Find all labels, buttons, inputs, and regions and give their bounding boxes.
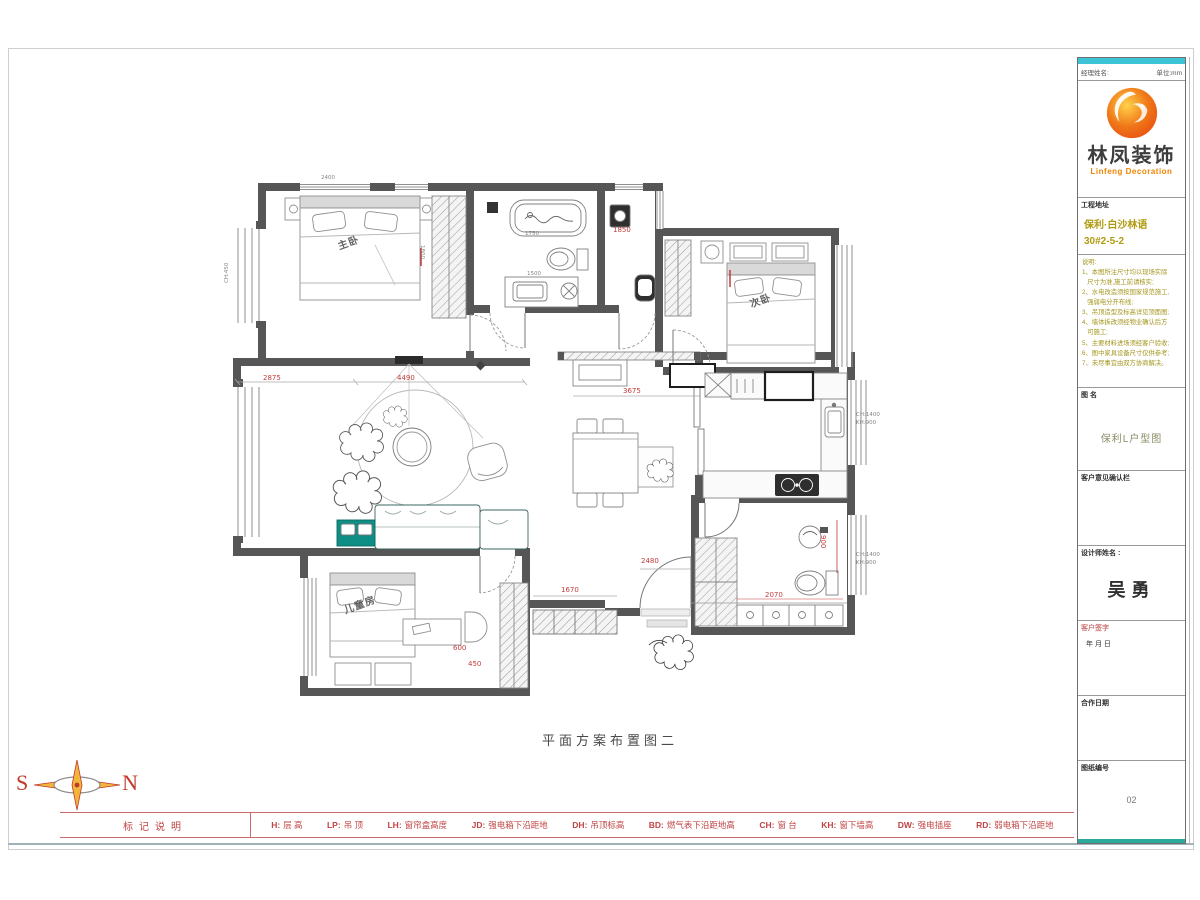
client-confirm-label: 客户意见确认栏 (1078, 471, 1185, 483)
entry-threshold (641, 609, 690, 616)
pillow (374, 587, 402, 605)
dining-furniture (573, 360, 715, 507)
compass-north-label: N (122, 770, 138, 796)
legend-item: JD:强电箱下沿距地 (472, 819, 548, 831)
drawing-name-label: 图 名 (1078, 388, 1185, 400)
bedroom3-furniture (330, 573, 528, 688)
drawer (375, 663, 411, 685)
plan-title: 平面方案布置图二 (500, 730, 720, 749)
section-client-signature: 客户签字 年 月 日 (1078, 621, 1185, 696)
window-master-top-1 (297, 183, 373, 191)
legend-item: LP:吊 顶 (327, 819, 363, 831)
legend-bar: 标记说明 H:层 高LP:吊 顶LH:窗帘盒高度JD:强电箱下沿距地DH:吊顶标… (60, 812, 1074, 838)
window-bath2-top (615, 183, 643, 191)
half-wall (558, 352, 700, 360)
master-bedroom-furniture (285, 196, 466, 318)
designer-label: 设计师姓名 : (1078, 546, 1185, 558)
section-client-confirm: 客户意见确认栏 (1078, 471, 1185, 546)
kitchen-furniture (703, 372, 847, 498)
signature-date-placeholder: 年 月 日 (1078, 633, 1185, 649)
section-designer: 设计师姓名 : 吴勇 (1078, 546, 1185, 621)
section-date: 合作日期 (1078, 696, 1185, 761)
sheet-number-value: 02 (1078, 795, 1185, 805)
legend-item: H:层 高 (271, 819, 302, 831)
tv (395, 356, 423, 364)
company-logo: 林凤装饰 Linfeng Decoration (1078, 81, 1185, 198)
legend-item: RD:弱电箱下沿距地 (976, 819, 1054, 831)
plant (340, 423, 384, 462)
legend-item: BD:燃气表下沿距地高 (649, 819, 735, 831)
headboard (330, 573, 415, 585)
project-address-line: 30#2-5-2 (1084, 234, 1181, 250)
section-project: 工程地址 保利·白沙林语30#2-5-2 (1078, 198, 1185, 255)
legend-item: KH:窗下墙高 (821, 819, 873, 831)
window-bedroom2-right (835, 245, 852, 367)
brand-name-en: Linfeng Decoration (1078, 167, 1185, 176)
bedroom2-furniture (665, 240, 815, 363)
chair (603, 419, 623, 433)
appliance-box (765, 372, 813, 400)
desk-chair (465, 612, 487, 642)
pillow (734, 277, 764, 297)
bath2-fixtures (610, 205, 655, 301)
headboard (727, 263, 815, 275)
plant (333, 471, 381, 513)
floor-plan: 2875449036751850248016702070900600450175… (225, 175, 870, 705)
chaise (480, 510, 528, 549)
headboard (300, 196, 420, 208)
pillow (336, 587, 364, 605)
drawing-sheet: 2875449036751850248016702070900600450175… (0, 0, 1200, 900)
floor-drain (487, 202, 498, 213)
window-kitchen-right (848, 380, 868, 465)
window-step-topright (656, 191, 663, 229)
chair (577, 419, 597, 433)
manager-label: 经理姓名: (1081, 67, 1109, 77)
laundry-cabinets (737, 605, 843, 626)
title-block: 经理姓名: 单位:mm 林凤装饰 Linfeng Decoration 工程地址… (1077, 57, 1186, 844)
notes-text: 说明: 1、本图所注尺寸均以现场实际 尺寸为准,施工前请核实; 2、水电改造须按… (1078, 255, 1185, 369)
project-label: 工程地址 (1078, 198, 1185, 210)
date-label: 合作日期 (1078, 696, 1185, 708)
compass-south-label: S (16, 770, 28, 796)
washbasin (799, 526, 821, 548)
plant (383, 406, 407, 427)
desk (403, 619, 461, 645)
brand-name: 林凤装饰 (1078, 146, 1185, 167)
legend-item: LH:窗帘盒高度 (387, 819, 447, 831)
bay-window-master-left (236, 221, 266, 328)
legend-title: 标记说明 (60, 813, 251, 837)
bath1-fixtures (487, 200, 588, 307)
legend-items: H:层 高LP:吊 顶LH:窗帘盒高度JD:强电箱下沿距地DH:吊顶标高BD:燃… (251, 819, 1074, 831)
compass: S N (12, 756, 142, 814)
project-address-line: 保利·白沙林语 (1084, 218, 1181, 234)
drawing-name-value: 保利L户型图 (1078, 430, 1185, 445)
pillow (364, 211, 398, 232)
dining-table (573, 433, 638, 493)
sliding-door-kitchen (694, 381, 704, 475)
teal-bottom-bar (1078, 839, 1185, 843)
title-block-header-row: 经理姓名: 单位:mm (1078, 64, 1185, 81)
sheet-number-label: 图纸编号 (1078, 761, 1185, 773)
legend-item: CH:窗 台 (759, 819, 796, 831)
logo-phoenix-icon (1103, 85, 1161, 141)
dimension-lines (235, 379, 527, 385)
section-drawing-name: 图 名 保利L户型图 (1078, 388, 1185, 471)
drawer (335, 663, 371, 685)
section-sheet-number: 图纸编号 02 (1078, 761, 1185, 839)
pillow (772, 277, 802, 297)
armchair (465, 441, 510, 483)
door-step (647, 620, 687, 627)
section-notes: 说明: 1、本图所注尺寸均以现场实际 尺寸为准,施工前请核实; 2、水电改造须按… (1078, 255, 1185, 388)
bay-window-living-left (233, 379, 266, 543)
units-label: 单位:mm (1156, 67, 1182, 77)
coffee-table (393, 428, 431, 466)
window-bath3-right (848, 515, 868, 595)
entry-furniture (533, 569, 693, 670)
legend-item: DH:吊顶标高 (572, 819, 624, 831)
chair (603, 493, 623, 507)
floor-plan-svg (225, 175, 870, 705)
window-master-top-2 (395, 183, 431, 191)
project-address: 保利·白沙林语30#2-5-2 (1078, 210, 1185, 250)
designer-name: 吴勇 (1078, 576, 1185, 602)
window-bedroom3-left (302, 578, 316, 676)
legend-item: DW:强电插座 (898, 819, 952, 831)
living-room-furniture (333, 356, 528, 549)
client-signature-label: 客户签字 (1078, 621, 1185, 633)
chair (577, 493, 597, 507)
